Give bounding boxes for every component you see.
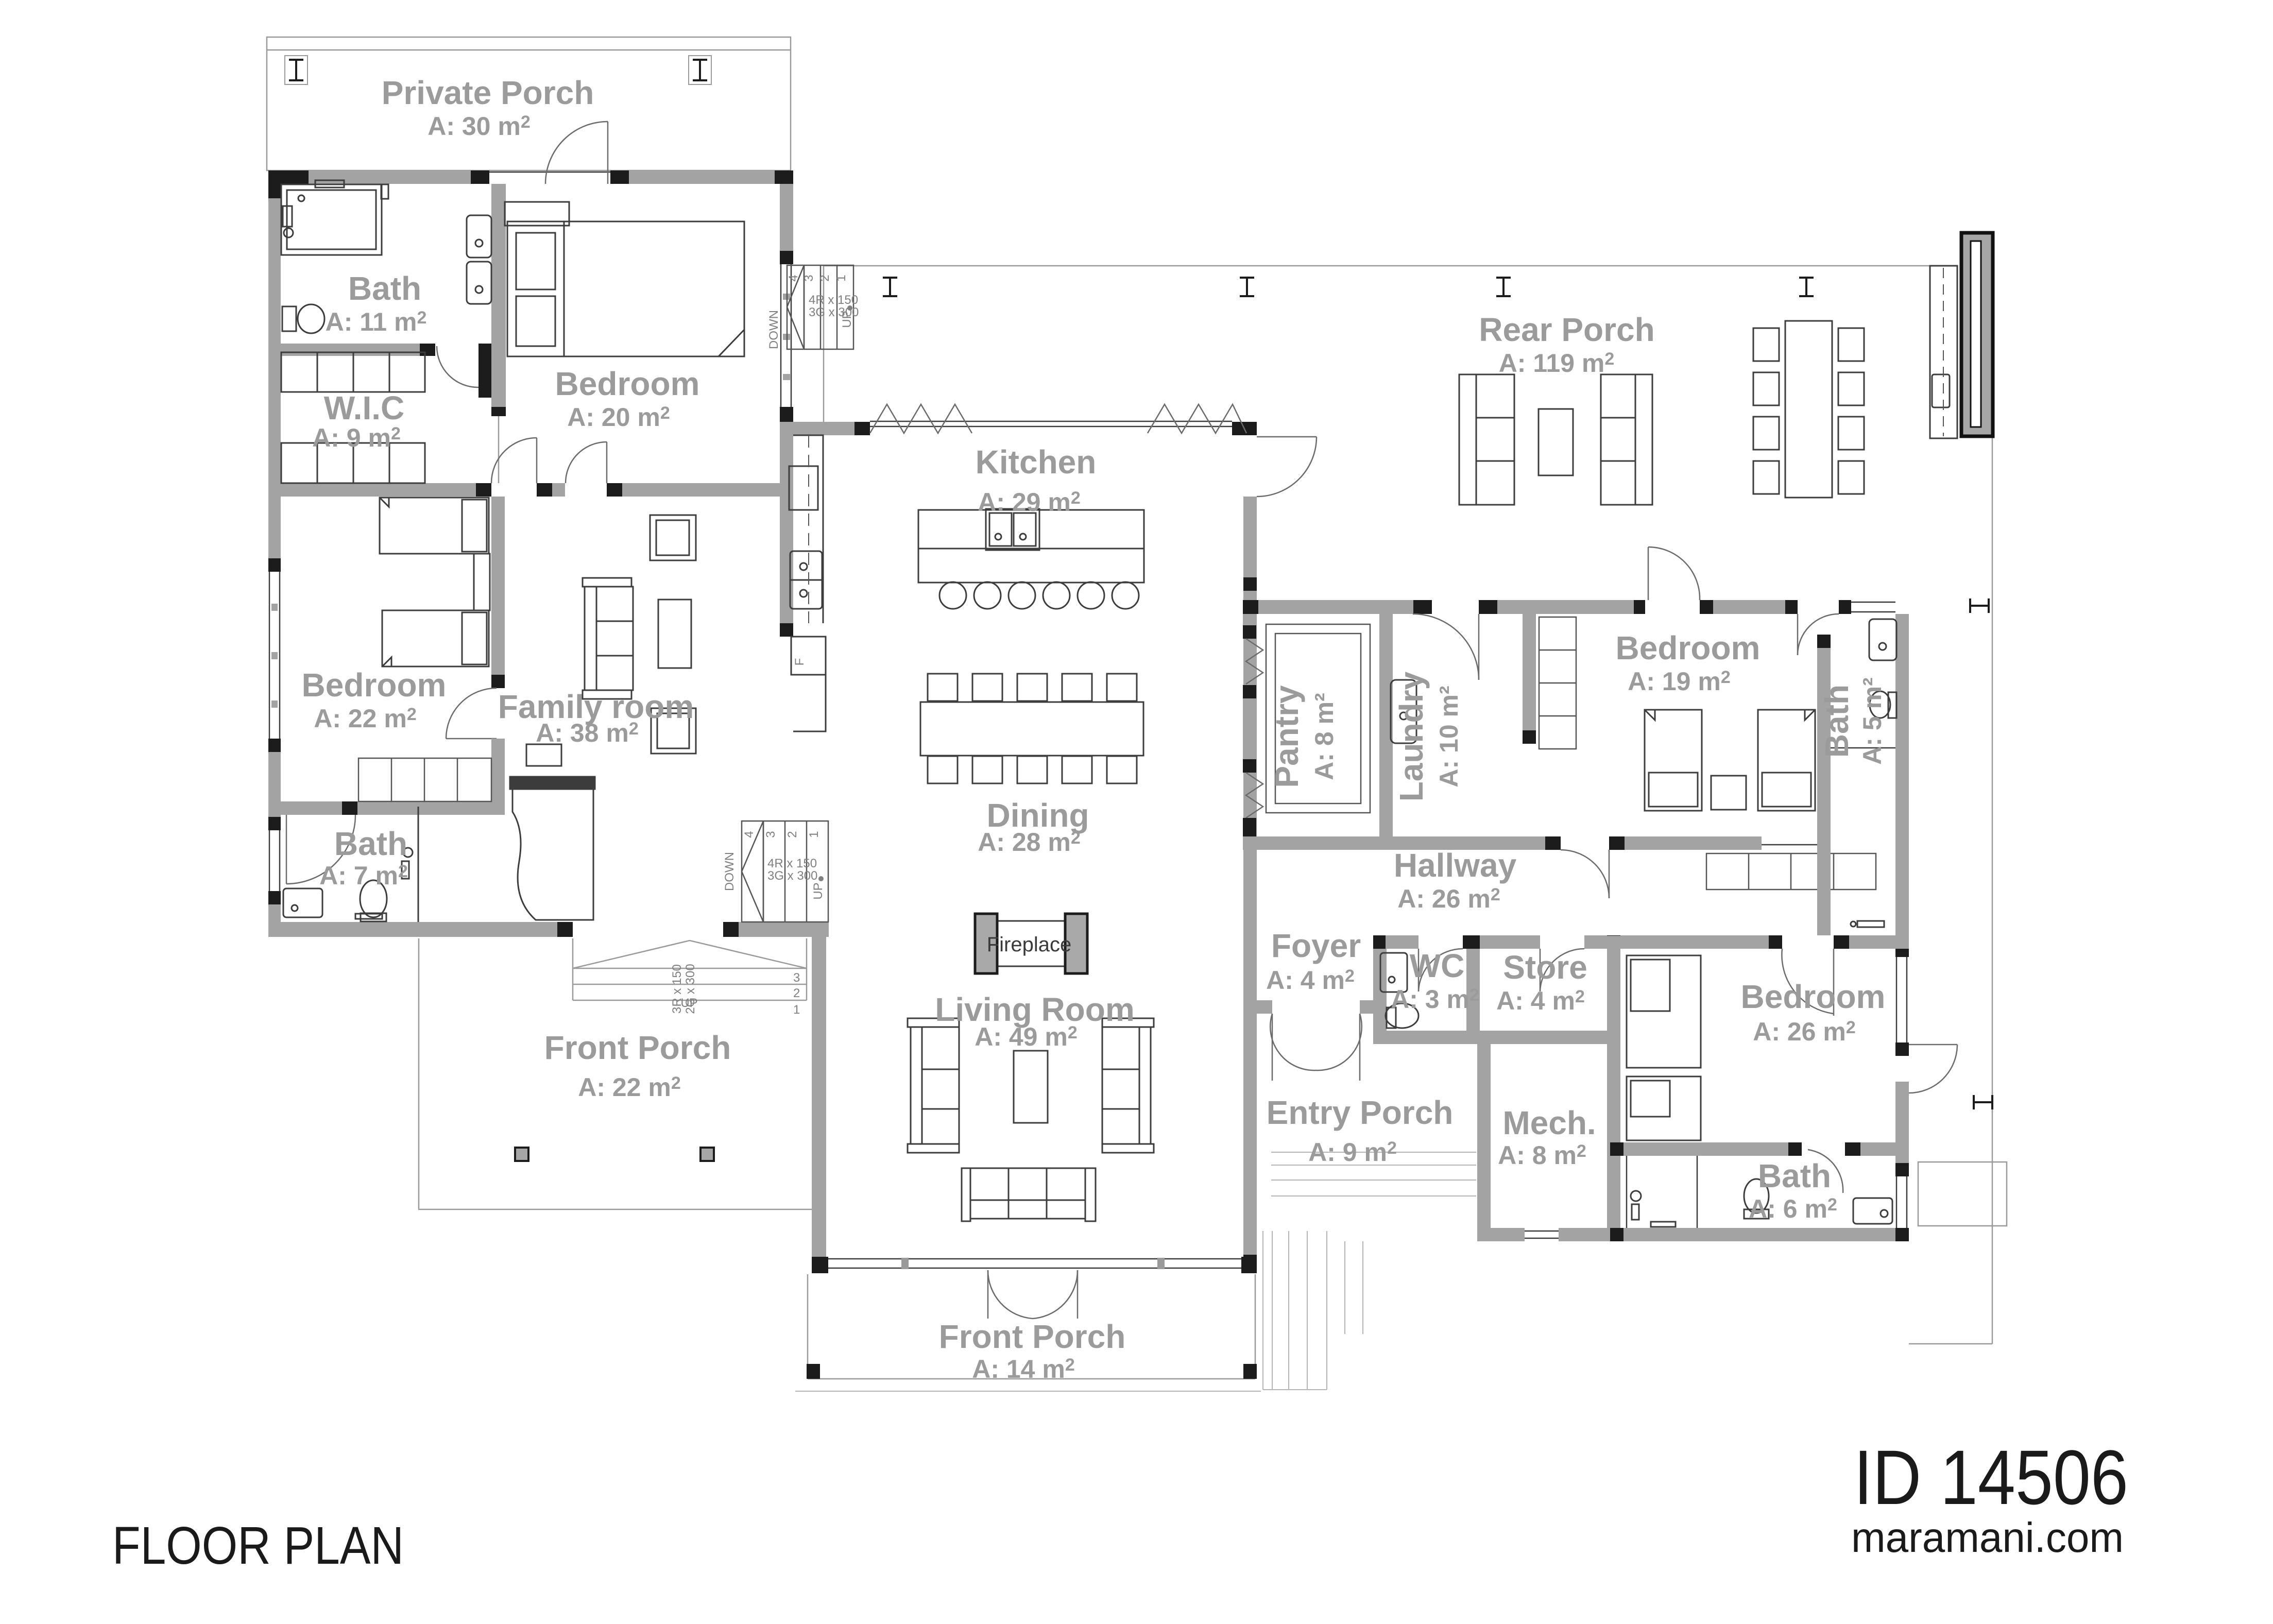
svg-text:Bedroom: Bedroom	[555, 365, 700, 402]
svg-text:ID 14506: ID 14506	[1854, 1434, 2128, 1520]
svg-text:WC: WC	[1410, 947, 1465, 984]
svg-text:A: 30 m2: A: 30 m2	[428, 112, 531, 141]
svg-text:Front Porch: Front Porch	[939, 1318, 1126, 1355]
svg-text:Bath: Bath	[334, 825, 407, 862]
svg-text:A: 22 m2: A: 22 m2	[314, 704, 417, 733]
svg-text:A: 9 m2: A: 9 m2	[312, 423, 401, 452]
svg-text:UP: UP	[811, 882, 825, 899]
svg-text:3: 3	[802, 275, 816, 281]
svg-text:1: 1	[807, 831, 821, 837]
svg-text:A: 28 m2: A: 28 m2	[978, 828, 1081, 857]
svg-text:UP: UP	[680, 996, 697, 1010]
svg-text:A: 4 m2: A: 4 m2	[1496, 986, 1585, 1015]
svg-text:4R x 150: 4R x 150	[767, 857, 817, 870]
svg-text:4: 4	[742, 831, 756, 837]
svg-text:Store: Store	[1503, 949, 1587, 986]
svg-text:Entry Porch: Entry Porch	[1267, 1094, 1454, 1131]
svg-text:1: 1	[793, 1003, 800, 1017]
svg-text:A: 3 m2: A: 3 m2	[1391, 985, 1479, 1014]
svg-text:Foyer: Foyer	[1271, 927, 1361, 964]
svg-text:Hallway: Hallway	[1394, 847, 1517, 884]
svg-text:A: 7 m2: A: 7 m2	[319, 861, 408, 890]
svg-text:Pantry: Pantry	[1268, 685, 1305, 788]
svg-text:A: 5 m²: A: 5 m²	[1858, 677, 1887, 764]
svg-text:Laundry: Laundry	[1393, 671, 1430, 801]
svg-text:A: 49 m2: A: 49 m2	[975, 1022, 1078, 1051]
svg-text:A: 29 m2: A: 29 m2	[978, 488, 1081, 517]
svg-text:Fireplace: Fireplace	[987, 933, 1072, 956]
svg-text:Kitchen: Kitchen	[976, 443, 1097, 481]
svg-text:A: 38 m2: A: 38 m2	[536, 719, 639, 747]
svg-text:A: 14 m2: A: 14 m2	[972, 1355, 1075, 1383]
svg-text:A: 10 m²: A: 10 m²	[1434, 686, 1463, 787]
svg-text:3: 3	[764, 831, 778, 837]
svg-text:Bath: Bath	[348, 270, 421, 307]
svg-text:Rear Porch: Rear Porch	[1479, 311, 1654, 348]
svg-text:Bedroom: Bedroom	[1616, 629, 1761, 666]
svg-text:Bath: Bath	[1758, 1157, 1831, 1194]
svg-text:A: 8 m2: A: 8 m2	[1498, 1141, 1586, 1170]
svg-text:2: 2	[818, 275, 832, 281]
svg-text:maramani.com: maramani.com	[1851, 1514, 2124, 1561]
svg-text:A: 22 m2: A: 22 m2	[578, 1073, 681, 1102]
svg-text:A: 26 m2: A: 26 m2	[1397, 884, 1500, 913]
svg-text:1: 1	[834, 275, 848, 281]
svg-text:Private Porch: Private Porch	[382, 74, 594, 111]
svg-text:FLOOR PLAN: FLOOR PLAN	[112, 1516, 404, 1575]
svg-text:F: F	[793, 658, 807, 666]
svg-text:DOWN: DOWN	[723, 852, 737, 891]
svg-text:A: 9 m2: A: 9 m2	[1308, 1138, 1397, 1167]
svg-text:A: 26 m2: A: 26 m2	[1753, 1017, 1856, 1046]
svg-text:Bath: Bath	[1818, 685, 1855, 758]
svg-text:Mech.: Mech.	[1502, 1104, 1596, 1141]
svg-text:4: 4	[787, 275, 800, 281]
svg-text:3G x 300: 3G x 300	[767, 869, 817, 883]
svg-text:W.I.C: W.I.C	[324, 389, 404, 426]
svg-text:4R x 150: 4R x 150	[809, 293, 858, 307]
svg-text:A: 20 m2: A: 20 m2	[567, 403, 670, 432]
svg-text:2: 2	[785, 831, 799, 837]
svg-text:A: 119 m2: A: 119 m2	[1499, 349, 1615, 378]
svg-text:A: 11 m2: A: 11 m2	[326, 307, 427, 336]
svg-text:A: 4 m2: A: 4 m2	[1266, 966, 1355, 995]
svg-text:UP: UP	[840, 311, 854, 328]
svg-text:Bedroom: Bedroom	[1741, 978, 1886, 1015]
svg-text:3: 3	[793, 971, 800, 985]
svg-text:A: 19 m2: A: 19 m2	[1628, 667, 1731, 696]
svg-text:A: 6 m2: A: 6 m2	[1749, 1194, 1837, 1223]
svg-text:Front Porch: Front Porch	[544, 1029, 731, 1066]
svg-text:A: 8 m²: A: 8 m²	[1310, 693, 1339, 780]
svg-text:2: 2	[793, 986, 800, 1000]
svg-text:Bedroom: Bedroom	[302, 666, 447, 704]
svg-text:DOWN: DOWN	[767, 310, 781, 349]
